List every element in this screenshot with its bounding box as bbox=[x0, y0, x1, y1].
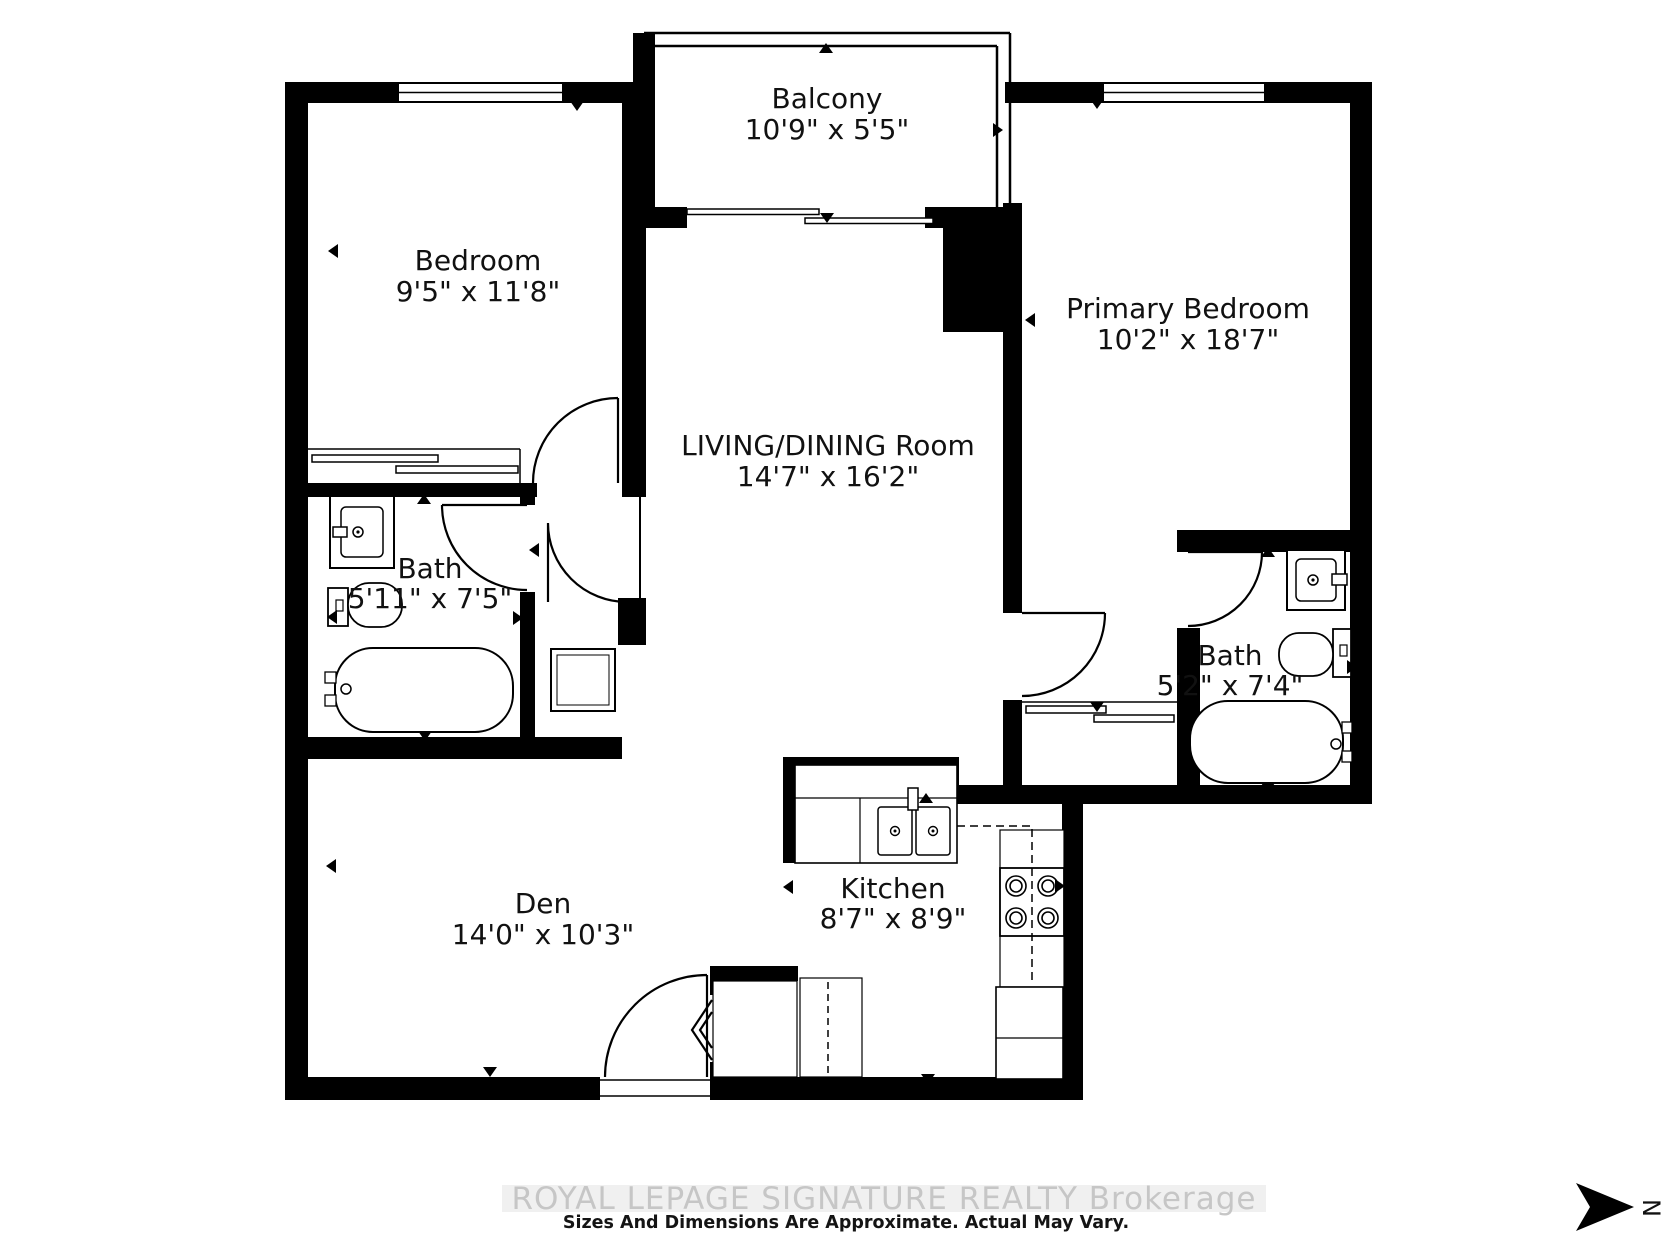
wall-bottom-right bbox=[710, 1077, 1083, 1100]
room-dims-primary-bedroom: 10'2" x 18'7" bbox=[1097, 323, 1279, 356]
footer: ROYAL LEPAGE SIGNATURE REALTY Brokerage … bbox=[502, 1181, 1266, 1233]
wall-right bbox=[1350, 82, 1372, 804]
wall-top-primary-a bbox=[1005, 82, 1103, 103]
room-dims-bedroom: 9'5" x 11'8" bbox=[396, 275, 561, 308]
wall-primary-left-upper bbox=[1003, 203, 1022, 613]
bedroom-closet-track-1 bbox=[312, 455, 438, 462]
structural-column bbox=[943, 218, 1007, 332]
bedroom-door-swing bbox=[533, 398, 618, 483]
bath-left-tub-tap-b bbox=[325, 695, 336, 706]
ensuite-toilet-button bbox=[1340, 645, 1347, 656]
bath-left-tub-faucet bbox=[341, 684, 351, 694]
wall-balcony-bottom-left bbox=[655, 207, 687, 228]
room-label-bedroom: Bedroom bbox=[415, 244, 542, 277]
ensuite-faucet bbox=[1332, 574, 1347, 585]
room-dims-bath-ensuite: 5'2" x 7'4" bbox=[1157, 669, 1304, 702]
ensuite-tub-faucet bbox=[1331, 739, 1341, 749]
brokerage-watermark: ROYAL LEPAGE SIGNATURE REALTY Brokerage bbox=[511, 1181, 1256, 1217]
wall-bedroom-bottom bbox=[285, 483, 537, 497]
floor-plan-drawing: Balcony 10'9" x 5'5" Bedroom 9'5" x 11'8… bbox=[0, 0, 1680, 1260]
primary-closet-track-2 bbox=[1094, 715, 1174, 722]
washer-unit-inner bbox=[557, 655, 609, 705]
kitchen-faucet bbox=[908, 788, 918, 810]
ensuite-tub bbox=[1190, 701, 1343, 783]
bath-left-tub-tap-a bbox=[325, 672, 336, 683]
wall-ensuite-top bbox=[1177, 530, 1372, 552]
disclaimer-text: Sizes And Dimensions Are Approximate. Ac… bbox=[563, 1213, 1129, 1233]
ensuite-tub-tap-b bbox=[1342, 751, 1352, 762]
hall-closet-door-swing bbox=[548, 523, 627, 602]
room-dims-kitchen: 8'7" x 8'9" bbox=[820, 902, 967, 935]
room-label-bath-left: Bath bbox=[397, 552, 462, 585]
north-arrow-icon bbox=[1576, 1183, 1634, 1231]
bath-left-tub bbox=[335, 648, 513, 732]
wall-top-bedroom-a bbox=[285, 82, 398, 103]
wall-kitchen-left-stub bbox=[783, 757, 795, 863]
wall-kitchen-right bbox=[1062, 802, 1083, 1100]
laundry-closet bbox=[551, 649, 615, 711]
entry-closet-bifold-door bbox=[692, 1000, 712, 1060]
entry-closet-interior bbox=[713, 981, 797, 1077]
primary-bedroom-window bbox=[1103, 83, 1265, 102]
ensuite-tub-tap-a bbox=[1342, 722, 1352, 733]
room-dims-bath-left: 5'11" x 7'5" bbox=[348, 582, 513, 615]
bath-left-toilet-button bbox=[336, 600, 343, 611]
wall-bath-right bbox=[520, 592, 535, 737]
room-label-den: Den bbox=[515, 887, 572, 920]
wall-left bbox=[285, 82, 308, 1100]
room-label-kitchen: Kitchen bbox=[840, 872, 945, 905]
entry-threshold bbox=[600, 1077, 710, 1100]
room-label-primary-bedroom: Primary Bedroom bbox=[1066, 292, 1310, 325]
kitchen-pantry-cabinet bbox=[800, 978, 862, 1077]
bedroom-closet-track-2 bbox=[396, 466, 518, 473]
bath-left-faucet bbox=[333, 527, 347, 537]
room-label-living-dining: LIVING/DINING Room bbox=[681, 429, 975, 462]
room-label-bath-ensuite: Bath bbox=[1197, 639, 1262, 672]
room-dims-living-dining: 14'7" x 16'2" bbox=[737, 460, 919, 493]
wall-bottom-left bbox=[285, 1077, 600, 1100]
wall-bath-bottom bbox=[285, 737, 622, 759]
wall-right-section-bottom bbox=[945, 785, 1372, 804]
bedroom-window bbox=[398, 83, 563, 102]
wall-bedroom-right bbox=[622, 82, 646, 497]
room-dims-den: 14'0" x 10'3" bbox=[452, 918, 634, 951]
balcony-slider-track-1 bbox=[687, 209, 819, 215]
room-dims-balcony: 10'9" x 5'5" bbox=[745, 113, 910, 146]
floor-plan-page: Balcony 10'9" x 5'5" Bedroom 9'5" x 11'8… bbox=[0, 0, 1680, 1260]
entry-door-swing bbox=[605, 975, 707, 1077]
ensuite-door-swing bbox=[1188, 552, 1262, 626]
fridge bbox=[996, 987, 1063, 1079]
wall-hall-stub bbox=[618, 598, 646, 645]
wall-bath-right-stub bbox=[520, 497, 535, 505]
wall-entry-closet-top bbox=[710, 966, 798, 981]
compass: N bbox=[1576, 1183, 1665, 1231]
room-label-balcony: Balcony bbox=[772, 82, 883, 115]
primary-bedroom-door-swing bbox=[1022, 613, 1105, 696]
north-label: N bbox=[1637, 1199, 1665, 1217]
